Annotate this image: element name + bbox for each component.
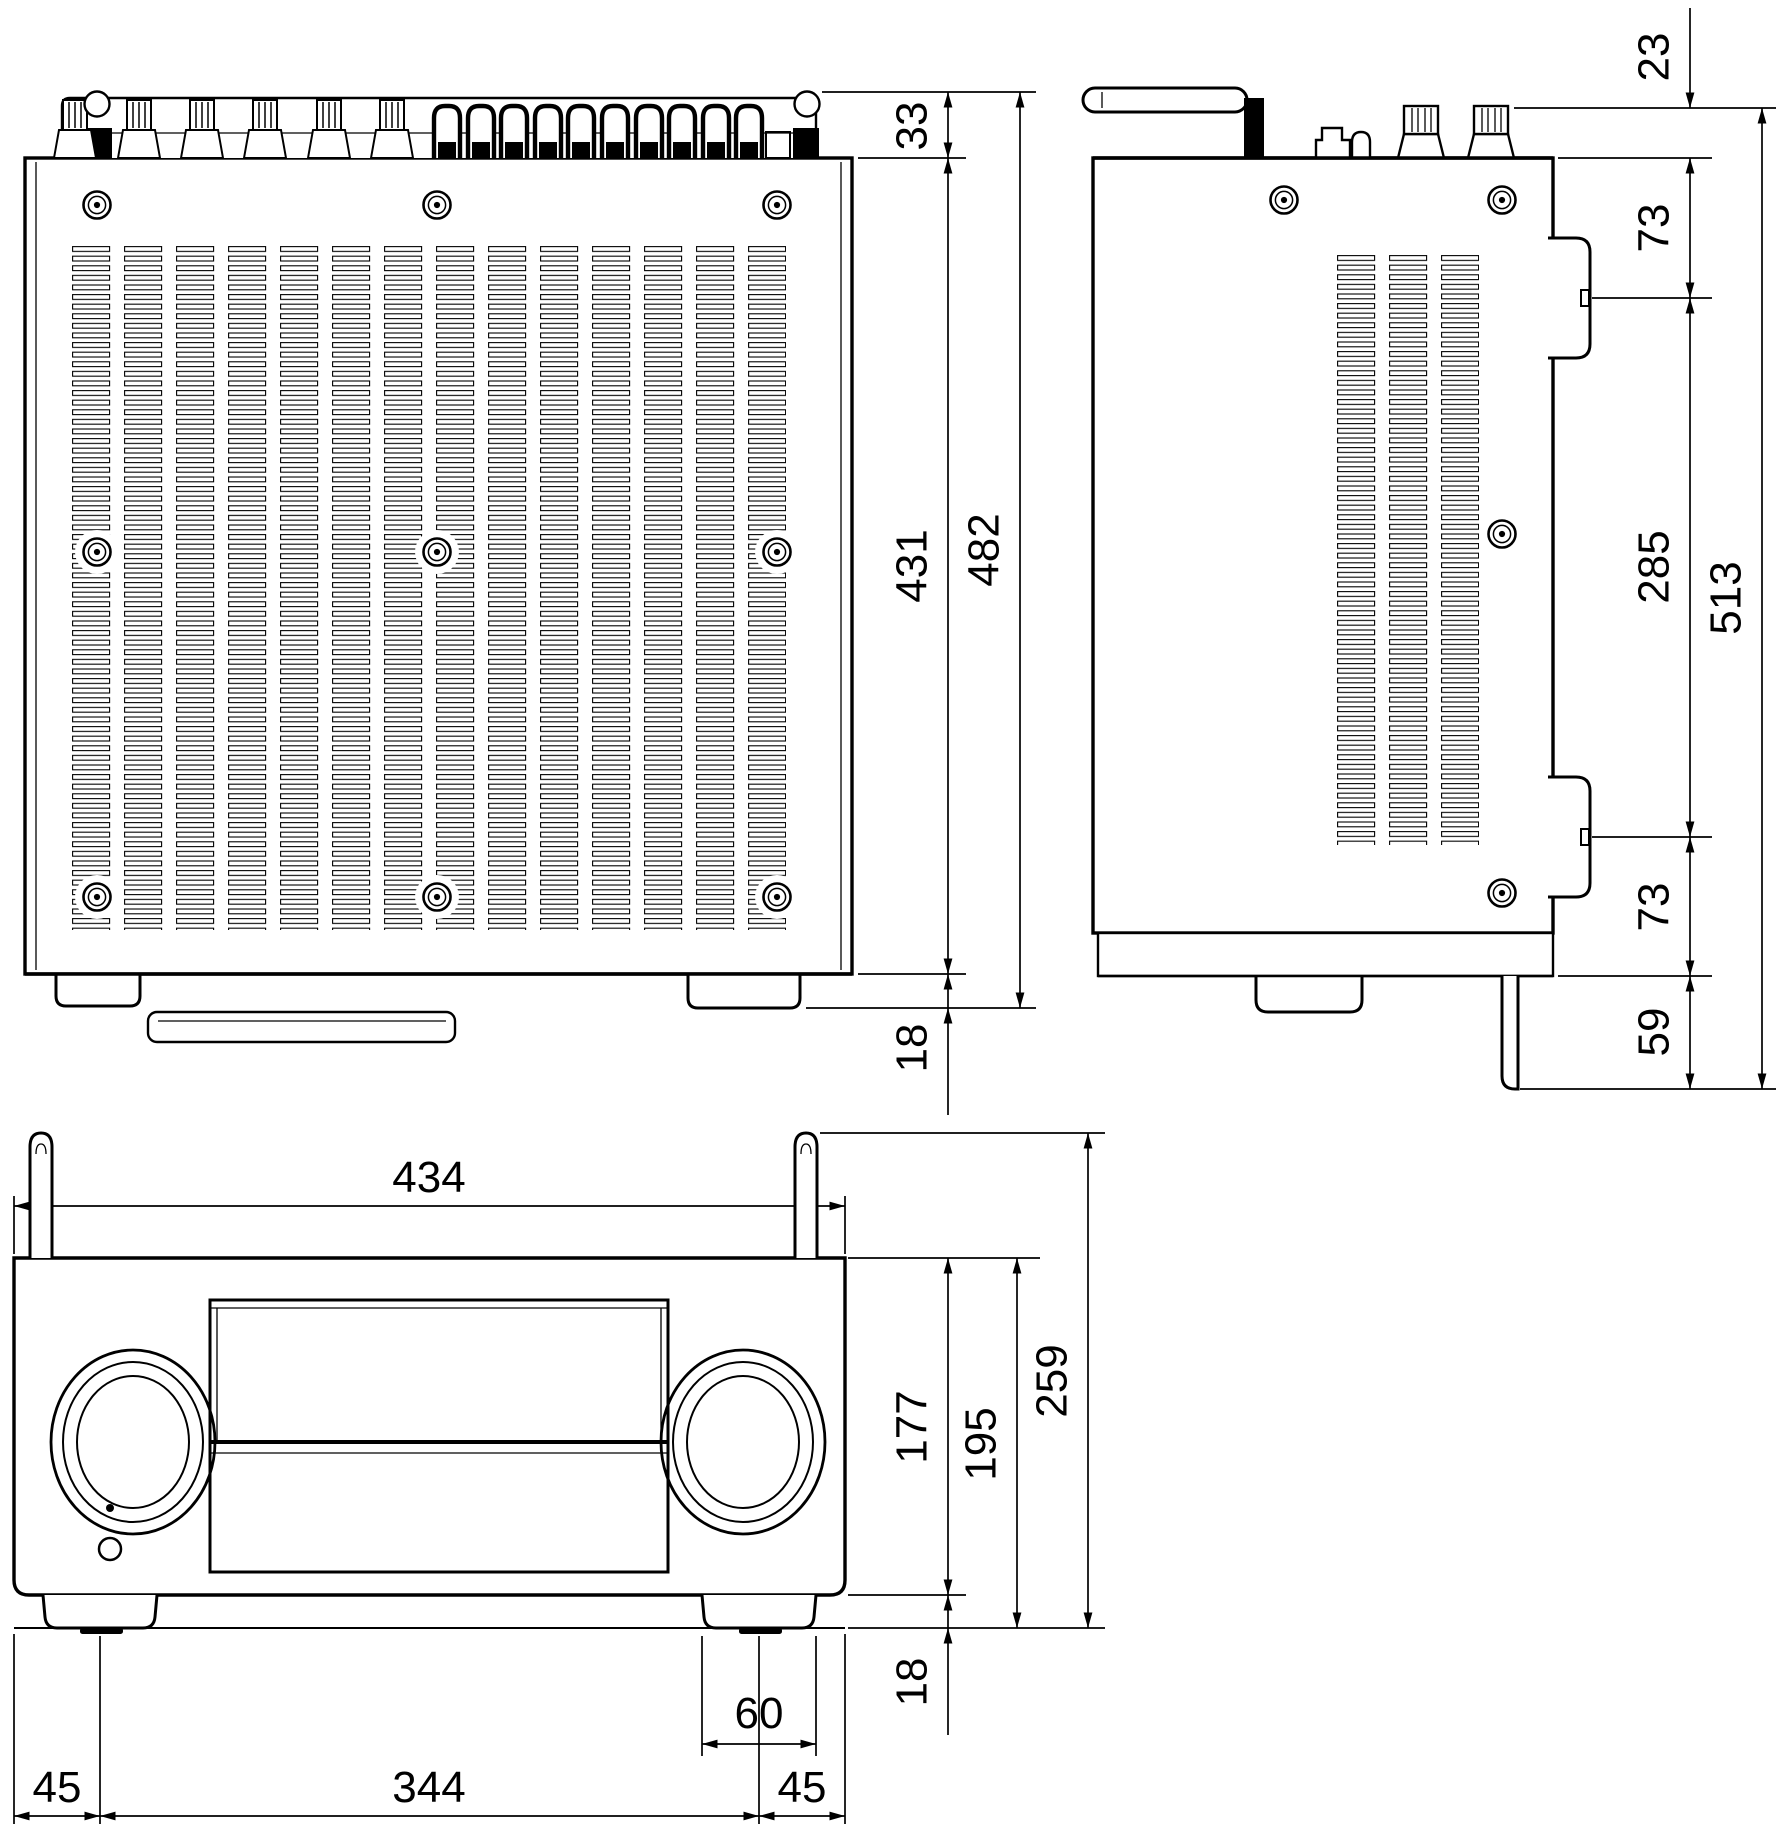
screw-icon: [1480, 178, 1524, 222]
dim-label-width: 434: [392, 1153, 465, 1202]
front-view: [14, 1133, 845, 1634]
speaker-loop-icon: [669, 106, 695, 158]
side-view-base-skirt: [1098, 933, 1553, 976]
dim-label-antenna-clearance: 23: [1630, 33, 1679, 82]
screw-icon: [415, 875, 459, 919]
antenna-rod: [1083, 88, 1247, 112]
screw-icon: [755, 875, 799, 919]
side-view: [1083, 88, 1590, 1089]
rear-connector-strip: [54, 92, 820, 159]
dim-label-foot-height: 18: [888, 1658, 937, 1707]
wifi-antenna-icon: [795, 92, 820, 117]
rear-connector-bump: [1352, 132, 1370, 158]
screw-icon: [75, 530, 119, 574]
speaker-loop-icon: [501, 106, 527, 158]
dim-label-foot-width: 60: [735, 1689, 784, 1738]
screw-icon: [1480, 871, 1524, 915]
foot-tab-upper: [1548, 238, 1590, 358]
front-door-edge: [148, 1012, 455, 1042]
dim-label-mount-spacing: 285: [1630, 530, 1679, 603]
front-knob-projection-left: [56, 974, 140, 1006]
dim-label-base-plate-drop: 59: [1630, 1008, 1679, 1057]
speaker-loop-icon: [703, 106, 729, 158]
dim-label-right-foot-offset: 45: [778, 1763, 827, 1812]
dim-label-top-to-upper-mount: 73: [1630, 204, 1679, 253]
dimension-drawing: 33 431 482 18: [0, 0, 1777, 1830]
speaker-loop-icon: [736, 106, 762, 158]
display-window: [210, 1300, 668, 1572]
speaker-loop-icon: [602, 106, 628, 158]
front-foot-left: [43, 1595, 157, 1628]
screw-icon: [755, 183, 799, 227]
power-indicator-dot: [106, 1504, 114, 1512]
antenna-connector-icon: [1468, 106, 1514, 158]
front-bottom-dimensions: 60 45 344 45: [14, 1634, 845, 1824]
screw-icon: [415, 530, 459, 574]
dim-label-total-depth-with-stand: 513: [1702, 561, 1751, 634]
dim-label-front-knob-projection: 18: [888, 1024, 937, 1073]
wifi-antenna-icon: [85, 92, 110, 117]
screw-icon: [1262, 178, 1306, 222]
screw-icon: [755, 530, 799, 574]
speaker-loop-icon: [535, 106, 561, 158]
antenna-connector-icon: [1398, 106, 1444, 158]
speaker-loop-icon: [636, 106, 662, 158]
foot-tab-lower: [1548, 777, 1590, 897]
dim-label-chassis-depth: 431: [888, 529, 937, 602]
front-antenna-right: [795, 1133, 817, 1258]
dim-label-panel-height: 177: [888, 1390, 937, 1463]
speaker-loop-icon: [568, 106, 594, 158]
technical-drawing-page: 33 431 482 18: [0, 0, 1777, 1830]
dim-label-lower-mount-to-base: 73: [1630, 883, 1679, 932]
antenna-mount-right: [793, 128, 819, 158]
front-knob-projection-right: [688, 974, 800, 1008]
vent-grid: [72, 246, 786, 930]
dim-label-total-depth: 482: [960, 513, 1009, 586]
display-window-frame: [210, 1300, 668, 1572]
side-front-knob-projection: [1256, 976, 1362, 1012]
speaker-loop-icon: [434, 106, 460, 158]
front-antenna-left: [30, 1133, 52, 1258]
dim-label-total-height: 259: [1028, 1344, 1077, 1417]
front-foot-right: [702, 1595, 816, 1628]
screw-icon: [75, 875, 119, 919]
speaker-loop-icon: [468, 106, 494, 158]
dim-label-left-foot-offset: 45: [33, 1763, 82, 1812]
front-base-plate: [1502, 976, 1518, 1089]
front-height-dimensions: 177 195 259 18: [820, 1133, 1105, 1735]
screw-icon: [1480, 512, 1524, 556]
screw-icon: [415, 183, 459, 227]
dim-label-foot-spacing: 344: [392, 1763, 465, 1812]
side-vent-grid: [1337, 255, 1479, 845]
antenna-elbow: [1244, 98, 1264, 158]
rear-connector-step: [1316, 128, 1350, 158]
dim-label-chassis-height: 195: [957, 1407, 1006, 1480]
top-view: [25, 92, 852, 1043]
screw-icon: [75, 183, 119, 227]
dim-label-rear-terminal-depth: 33: [888, 102, 937, 151]
front-width-dimension: 434: [14, 1153, 845, 1254]
